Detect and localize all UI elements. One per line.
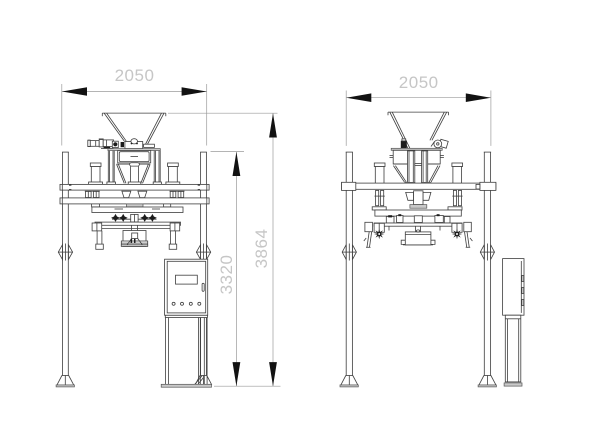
- svg-text:3864: 3864: [252, 229, 271, 269]
- svg-text:2050: 2050: [399, 73, 439, 92]
- svg-text:2050: 2050: [115, 66, 155, 85]
- svg-text:3320: 3320: [217, 255, 236, 295]
